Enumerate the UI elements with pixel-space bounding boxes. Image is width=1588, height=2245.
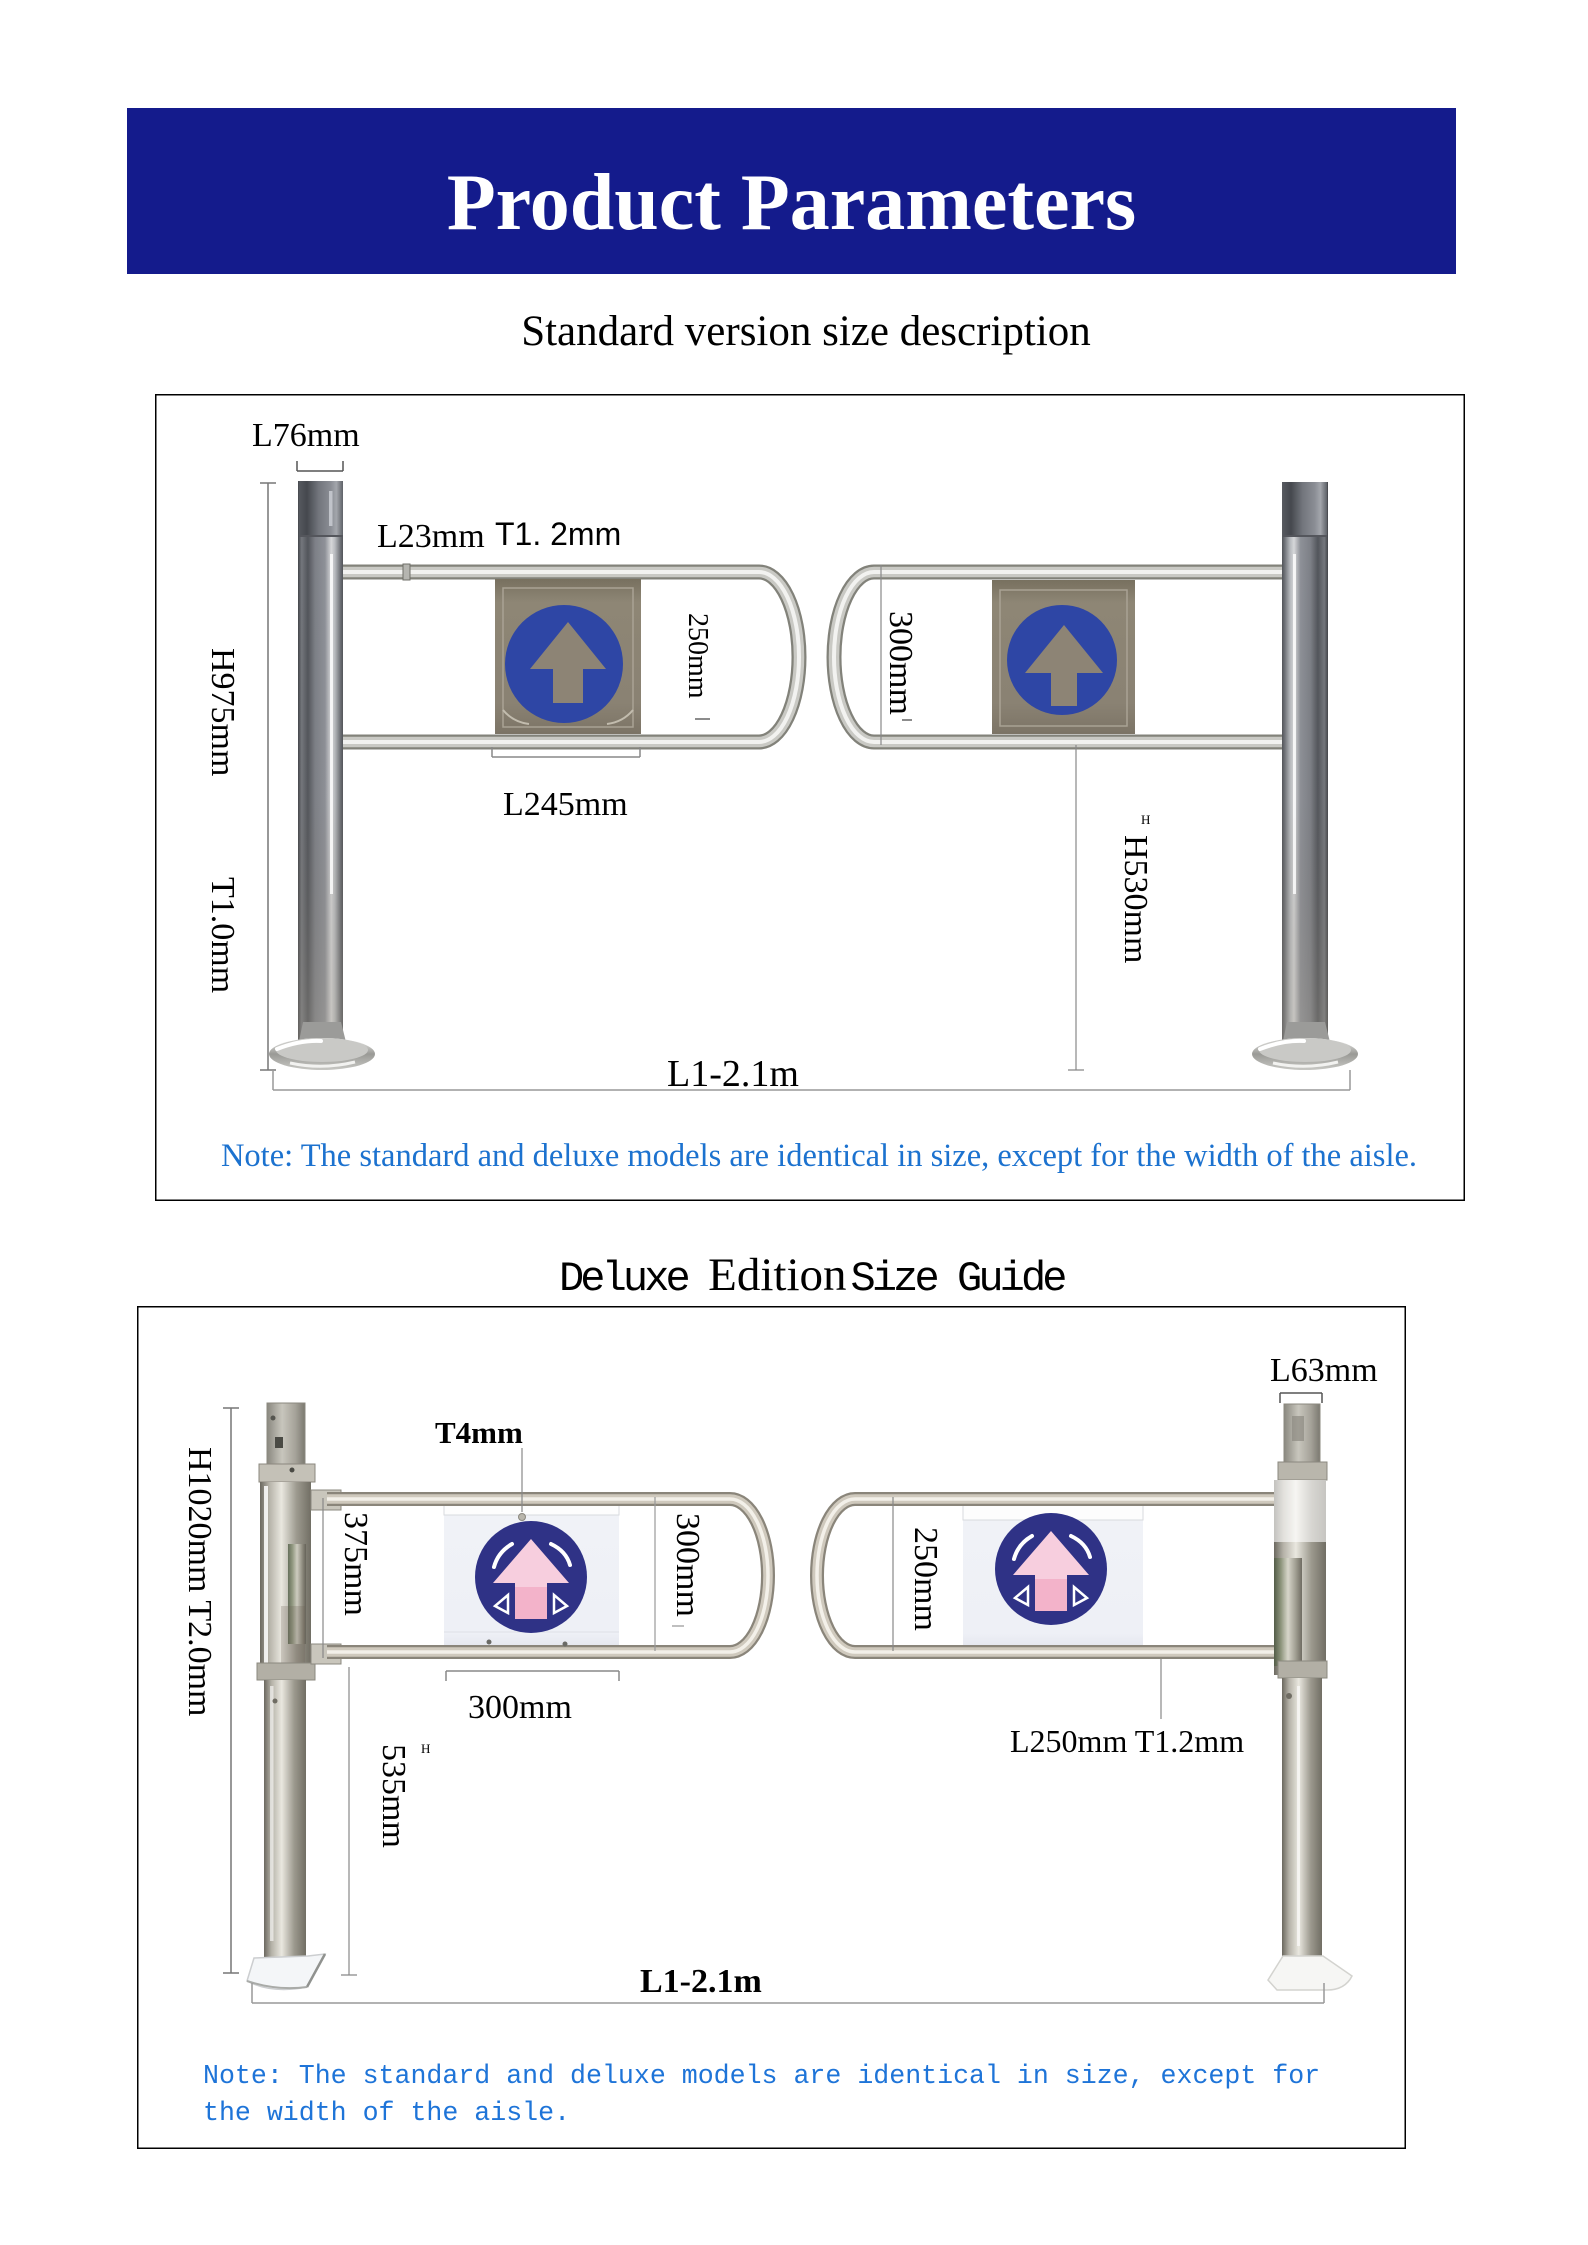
svg-text:L76mm: L76mm bbox=[252, 417, 360, 454]
svg-text:375mm: 375mm bbox=[337, 1512, 374, 1616]
svg-text:L63mm: L63mm bbox=[1270, 1352, 1378, 1389]
svg-text:L1-2.1m: L1-2.1m bbox=[667, 1053, 799, 1095]
svg-text:H: H bbox=[421, 1741, 430, 1756]
svg-text:Note: The standard and deluxe: Note: The standard and deluxe models are… bbox=[203, 2061, 1320, 2091]
svg-text:300mm: 300mm bbox=[882, 611, 919, 715]
svg-text:H975mm: H975mm bbox=[204, 648, 241, 776]
svg-text:T1.0mm: T1.0mm bbox=[204, 877, 241, 993]
svg-text:L250mm T1.2mm: L250mm T1.2mm bbox=[1010, 1723, 1244, 1759]
svg-text:300mm: 300mm bbox=[669, 1513, 706, 1617]
svg-text:L1-2.1m: L1-2.1m bbox=[640, 1963, 762, 2000]
svg-text:250mm: 250mm bbox=[682, 613, 713, 699]
svg-text:the width of the aisle.: the width of the aisle. bbox=[203, 2098, 570, 2128]
svg-text:535mm: 535mm bbox=[375, 1744, 412, 1848]
svg-text:H1020mm T2.0mm: H1020mm T2.0mm bbox=[181, 1447, 218, 1717]
svg-text:250mm: 250mm bbox=[907, 1527, 944, 1631]
svg-text:Note: The standard and deluxe: Note: The standard and deluxe models are… bbox=[221, 1138, 1417, 1174]
svg-text:H530mm: H530mm bbox=[1117, 835, 1154, 963]
svg-text:300mm: 300mm bbox=[468, 1689, 572, 1726]
svg-text:T4mm: T4mm bbox=[435, 1415, 523, 1450]
svg-text:T1. 2mm: T1. 2mm bbox=[495, 516, 621, 552]
svg-text:H: H bbox=[1141, 812, 1150, 827]
svg-text:L245mm: L245mm bbox=[503, 786, 628, 823]
svg-text:L23mm: L23mm bbox=[377, 518, 485, 555]
